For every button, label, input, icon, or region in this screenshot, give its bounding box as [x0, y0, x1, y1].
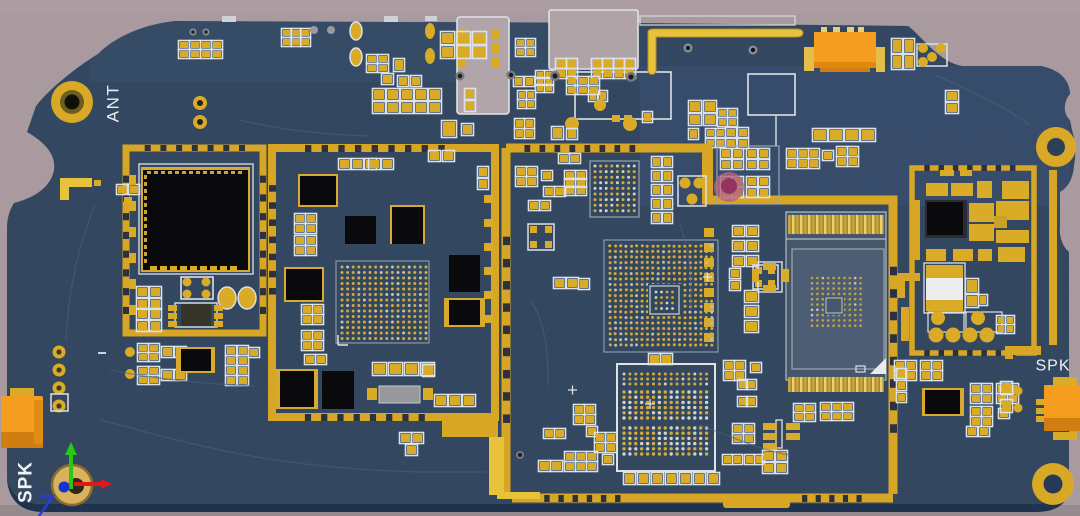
svg-text:SPK: SPK — [16, 461, 37, 503]
svg-text:ANT: ANT — [104, 84, 123, 123]
svg-text:SPK: SPK — [1035, 358, 1070, 375]
